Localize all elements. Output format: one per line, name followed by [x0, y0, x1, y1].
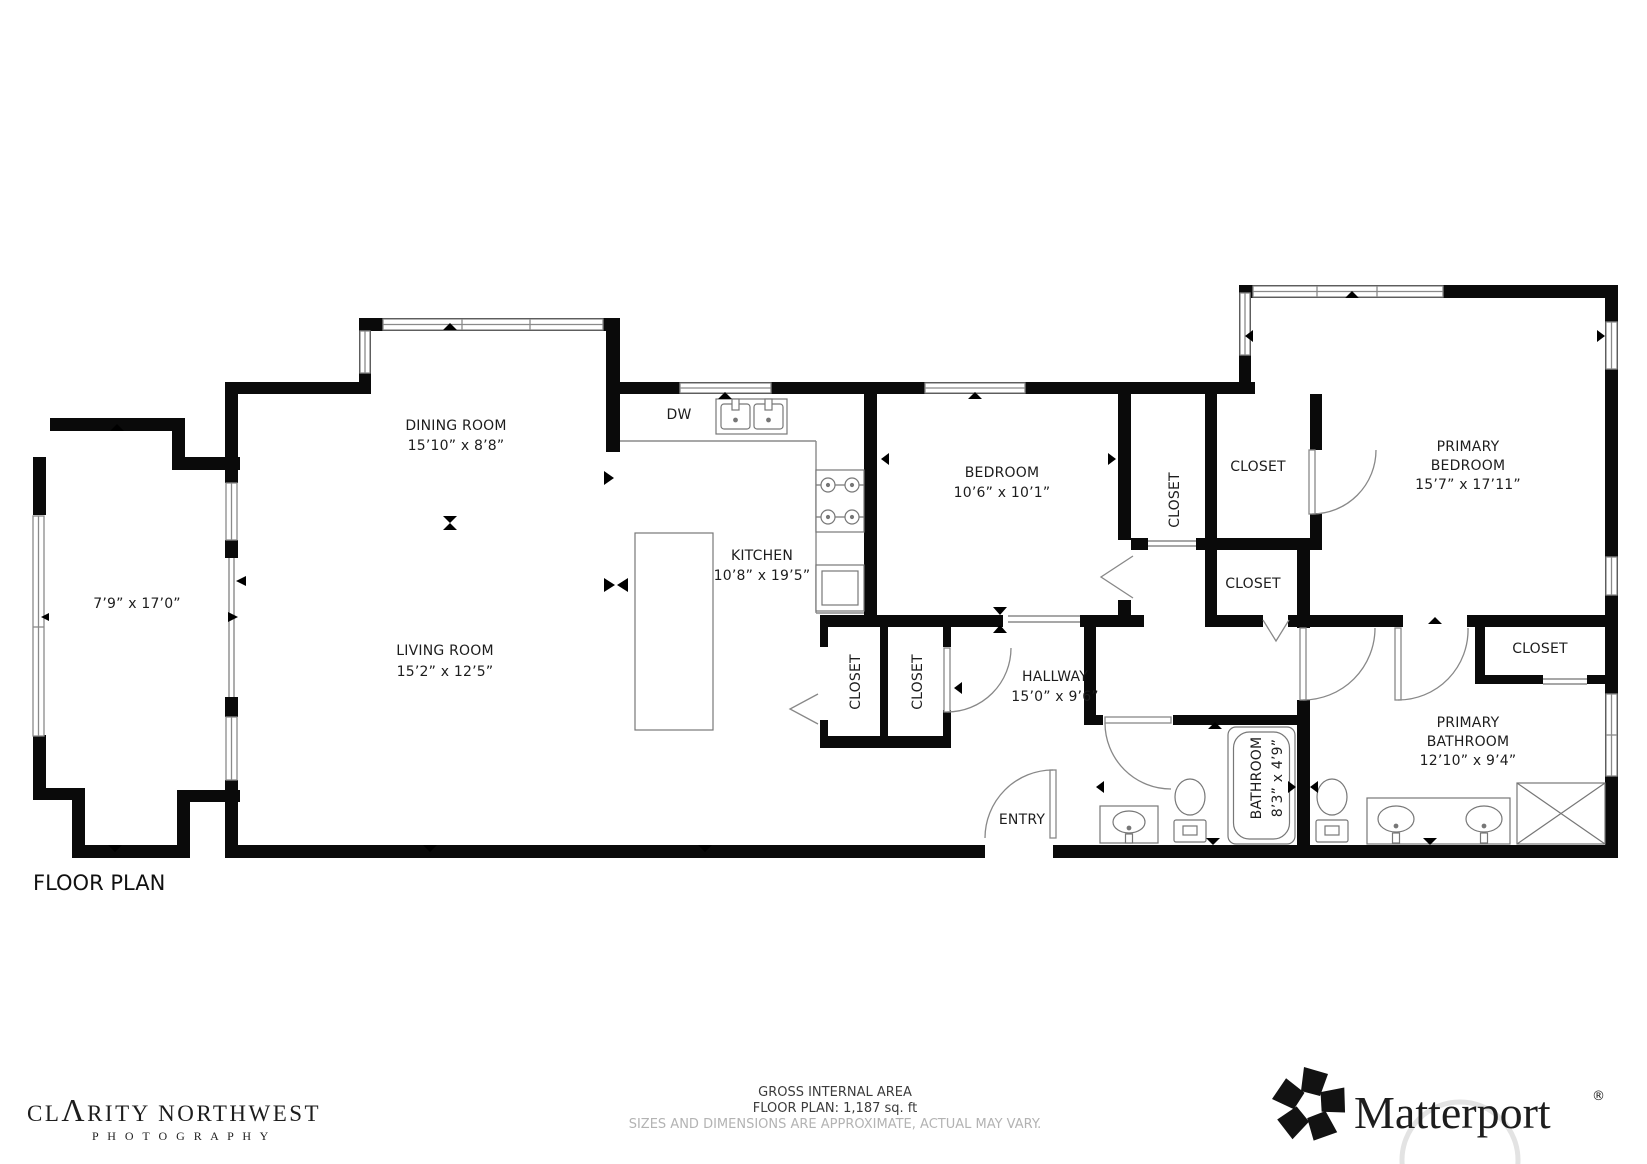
primary-bedroom-name1: PRIMARY: [1437, 439, 1500, 455]
closet-bifold-door: [1263, 620, 1289, 641]
deck-dims: 7’9” x 17’0”: [93, 596, 181, 612]
bedroom-door-swing: [1101, 556, 1133, 598]
matterport-logo: Matterport ®: [1271, 1067, 1605, 1164]
dining-room-dims: 15’10” x 8’8”: [408, 438, 505, 454]
closet-label: CLOSET: [1230, 459, 1286, 475]
gross-internal-area: GROSS INTERNAL AREA: [758, 1085, 912, 1100]
living-room-name: LIVING ROOM: [396, 643, 493, 659]
bedroom-name: BEDROOM: [965, 465, 1039, 481]
double-vanity-icon: [1367, 798, 1510, 844]
hallway-dims: 15’0” x 9’6”: [1011, 689, 1099, 705]
kitchen-cabinet-icon: [816, 565, 864, 611]
bathroom-dims: 8’3” x 4’9”: [1270, 739, 1286, 817]
bathroom-door-leaf: [1105, 717, 1171, 723]
closet-label: CLOSET: [1167, 472, 1183, 528]
bathroom-name: BATHROOM: [1249, 737, 1265, 820]
entry-label: ENTRY: [999, 812, 1046, 828]
toilet-icon: [1316, 779, 1348, 842]
closet-label: CLOSET: [910, 654, 926, 710]
toilet-icon: [1174, 779, 1206, 842]
floor-plan-drawing: 7’9” x 17’0” DINING ROOM 15’10” x 8’8” D…: [0, 0, 1647, 1164]
kitchen-name: KITCHEN: [731, 548, 793, 564]
primary-bedroom-door-leaf: [1300, 628, 1306, 700]
shower-icon: [1517, 783, 1605, 844]
kitchen-dims: 10’8” x 19’5”: [714, 568, 811, 584]
stove-icon: [816, 470, 864, 532]
kitchen-island: [635, 533, 713, 730]
closet-door-swing: [790, 694, 818, 724]
closet-label: CLOSET: [1225, 576, 1281, 592]
living-room-dims: 15’2” x 12’5”: [397, 664, 494, 680]
photographer-sub: P H O T O G R A P H Y: [92, 1129, 271, 1143]
bedroom-dims: 10’6” x 10’1”: [954, 485, 1051, 501]
windows: [33, 286, 1617, 780]
hall-closet-door-leaf: [944, 648, 950, 712]
primary-bedroom-dims: 15’7” x 17’11”: [1415, 477, 1521, 493]
photographer-name: CLΛRITY NORTHWEST: [27, 1092, 321, 1128]
primary-bathroom-door-leaf: [1395, 628, 1401, 700]
registered-mark: ®: [1592, 1089, 1605, 1104]
brand-name: Matterport: [1354, 1087, 1551, 1138]
closet-door-leaf: [1309, 450, 1315, 514]
primary-bedroom-name2: BEDROOM: [1431, 458, 1505, 474]
vanity-sink-icon: [1100, 806, 1158, 843]
dining-room-name: DINING ROOM: [405, 418, 506, 434]
clarity-northwest-logo: CLΛRITY NORTHWEST P H O T O G R A P H Y: [27, 1092, 321, 1143]
hallway-name: HALLWAY: [1022, 669, 1088, 685]
matterport-icon: [1271, 1067, 1352, 1146]
closet-label: CLOSET: [848, 654, 864, 710]
floor-plan-page: 7’9” x 17’0” DINING ROOM 15’10” x 8’8” D…: [0, 0, 1647, 1164]
kitchen-sink-icon: [716, 399, 787, 434]
primary-bathroom-name2: BATHROOM: [1427, 734, 1510, 750]
footer-area-info: GROSS INTERNAL AREA FLOOR PLAN: 1,187 sq…: [629, 1085, 1042, 1132]
page-title: FLOOR PLAN: [33, 871, 165, 895]
primary-bathroom-name1: PRIMARY: [1437, 715, 1500, 731]
closet-label: CLOSET: [1512, 641, 1568, 657]
floor-plan-area: FLOOR PLAN: 1,187 sq. ft: [753, 1101, 917, 1116]
dishwasher-label: DW: [666, 407, 691, 423]
disclaimer: SIZES AND DIMENSIONS ARE APPROXIMATE, AC…: [629, 1117, 1042, 1132]
primary-bathroom-dims: 12’10” x 9’4”: [1420, 753, 1517, 769]
entry-door-leaf: [1050, 770, 1056, 838]
